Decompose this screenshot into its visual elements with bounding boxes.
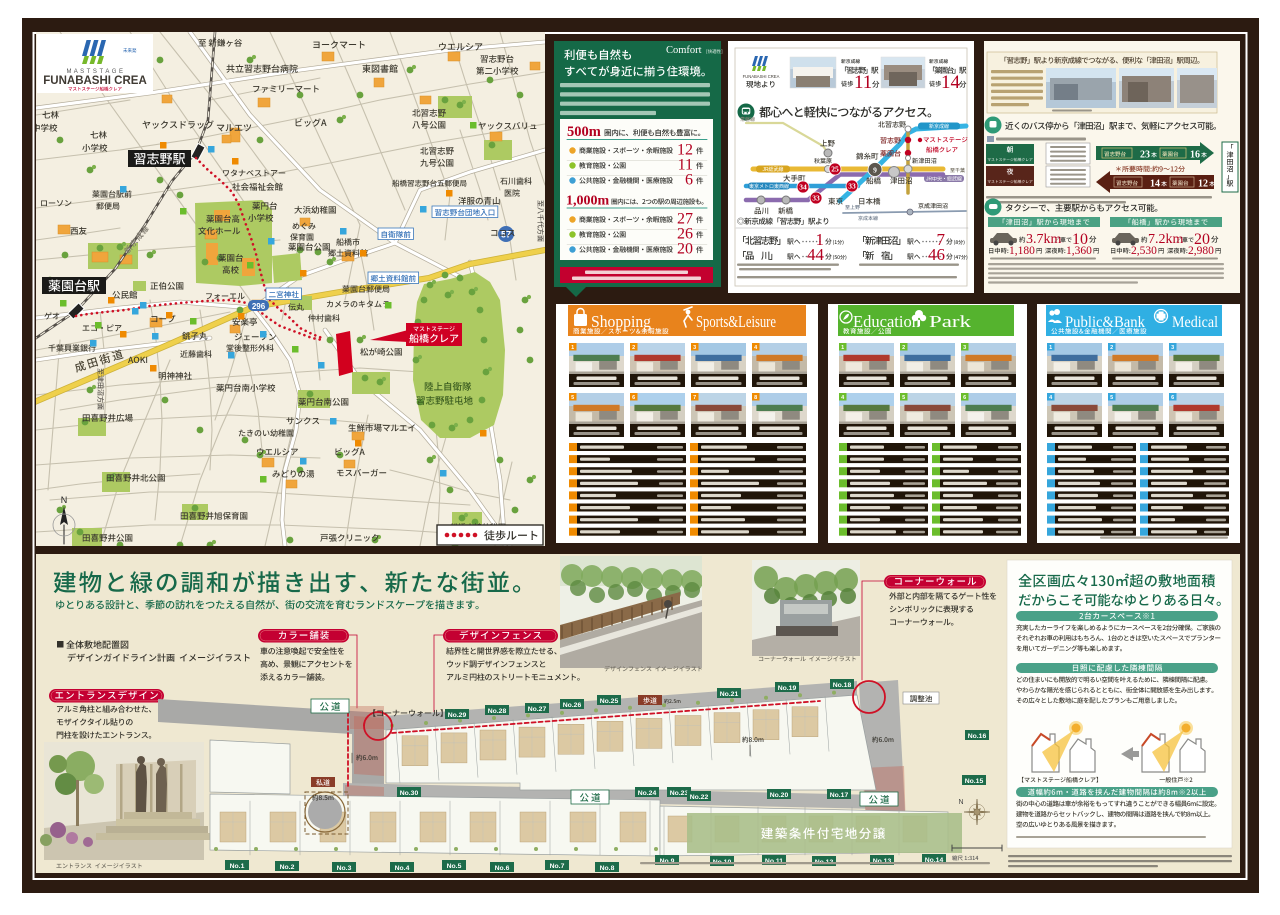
svg-text:No.21: No.21	[720, 691, 739, 698]
svg-text:1,000m: 1,000m	[566, 194, 610, 209]
svg-text:25: 25	[831, 165, 839, 174]
svg-text:44: 44	[807, 245, 825, 264]
svg-text:No.25: No.25	[600, 698, 619, 705]
svg-text:16: 16	[1190, 150, 1200, 161]
svg-text:3: 3	[1171, 345, 1174, 351]
svg-text:未来発: 未来発	[123, 47, 137, 54]
svg-text:34: 34	[799, 183, 807, 192]
svg-text:Sports&Leisure: Sports&Leisure	[696, 312, 776, 331]
svg-text:No.18: No.18	[833, 682, 852, 689]
svg-text:新京成線: 新京成線	[929, 123, 949, 130]
svg-text:1,180: 1,180	[1009, 245, 1035, 257]
svg-text:No.5: No.5	[447, 863, 462, 870]
svg-text:Comfort: Comfort	[666, 45, 702, 56]
svg-text:2: 2	[632, 345, 635, 351]
svg-text:No.24: No.24	[638, 790, 657, 797]
svg-text:9: 9	[873, 166, 877, 175]
svg-text:57: 57	[501, 230, 511, 240]
svg-text:2: 2	[902, 345, 905, 351]
svg-text:Park: Park	[929, 312, 972, 331]
svg-text:6: 6	[1171, 395, 1174, 401]
svg-text:33: 33	[812, 194, 820, 203]
svg-text:N: N	[958, 799, 963, 806]
svg-text:1: 1	[841, 345, 844, 351]
svg-text:7: 7	[693, 395, 696, 401]
svg-text:東京メトロ東西線: 東京メトロ東西線	[749, 183, 789, 190]
svg-text:23: 23	[1140, 150, 1150, 161]
svg-text:3: 3	[963, 345, 966, 351]
svg-text:296: 296	[252, 302, 266, 311]
svg-text:Education: Education	[853, 312, 920, 331]
svg-text:No.8: No.8	[600, 865, 615, 872]
svg-text:6: 6	[632, 395, 635, 401]
svg-text:No.1: No.1	[230, 863, 245, 870]
svg-text:5: 5	[571, 395, 574, 401]
svg-text:FUNABASHI CREA: FUNABASHI CREA	[743, 74, 780, 79]
svg-text:No.27: No.27	[528, 706, 547, 713]
svg-text:3: 3	[693, 345, 696, 351]
svg-text:46: 46	[928, 245, 945, 264]
svg-text:2,980: 2,980	[1188, 245, 1214, 257]
svg-text:No.16: No.16	[968, 733, 987, 740]
svg-text:1: 1	[571, 345, 574, 351]
svg-text:14: 14	[1150, 179, 1160, 190]
svg-text:No.17: No.17	[830, 792, 849, 799]
svg-text:5: 5	[902, 395, 905, 401]
svg-text:33: 33	[848, 182, 856, 191]
svg-text:No.23: No.23	[670, 790, 689, 797]
svg-text:8: 8	[754, 395, 757, 401]
svg-text:2,530: 2,530	[1131, 245, 1157, 257]
svg-text:No.19: No.19	[778, 685, 797, 692]
svg-text:No.3: No.3	[337, 865, 352, 872]
svg-text:No.30: No.30	[400, 790, 419, 797]
svg-text:11: 11	[854, 72, 872, 93]
svg-text:No.7: No.7	[550, 863, 565, 870]
svg-text:No.15: No.15	[965, 778, 984, 785]
svg-text:No.26: No.26	[563, 702, 582, 709]
svg-text:No.4: No.4	[395, 865, 410, 872]
svg-text:5: 5	[1110, 395, 1113, 401]
svg-text:N: N	[61, 495, 68, 505]
svg-text:6: 6	[963, 395, 966, 401]
svg-text:12: 12	[1198, 179, 1208, 190]
svg-text:Medical: Medical	[1172, 314, 1218, 331]
svg-text:FUNABASHI CREA: FUNABASHI CREA	[43, 75, 147, 87]
svg-text:20: 20	[677, 241, 693, 258]
svg-text:14: 14	[941, 72, 961, 93]
svg-text:No.6: No.6	[495, 865, 510, 872]
svg-text:Shopping: Shopping	[591, 312, 651, 331]
svg-text:No.29: No.29	[448, 712, 467, 719]
svg-text:JR総武線: JR総武線	[762, 166, 783, 173]
svg-text:No.22: No.22	[690, 794, 709, 801]
svg-text:1: 1	[1049, 345, 1052, 351]
svg-text:No.20: No.20	[770, 792, 789, 799]
svg-text:No.28: No.28	[488, 708, 507, 715]
svg-text:1,360: 1,360	[1066, 245, 1092, 257]
svg-text:500m: 500m	[567, 124, 601, 140]
svg-text:2: 2	[1110, 345, 1113, 351]
svg-text:No.2: No.2	[280, 864, 295, 871]
svg-text:6: 6	[685, 172, 693, 189]
